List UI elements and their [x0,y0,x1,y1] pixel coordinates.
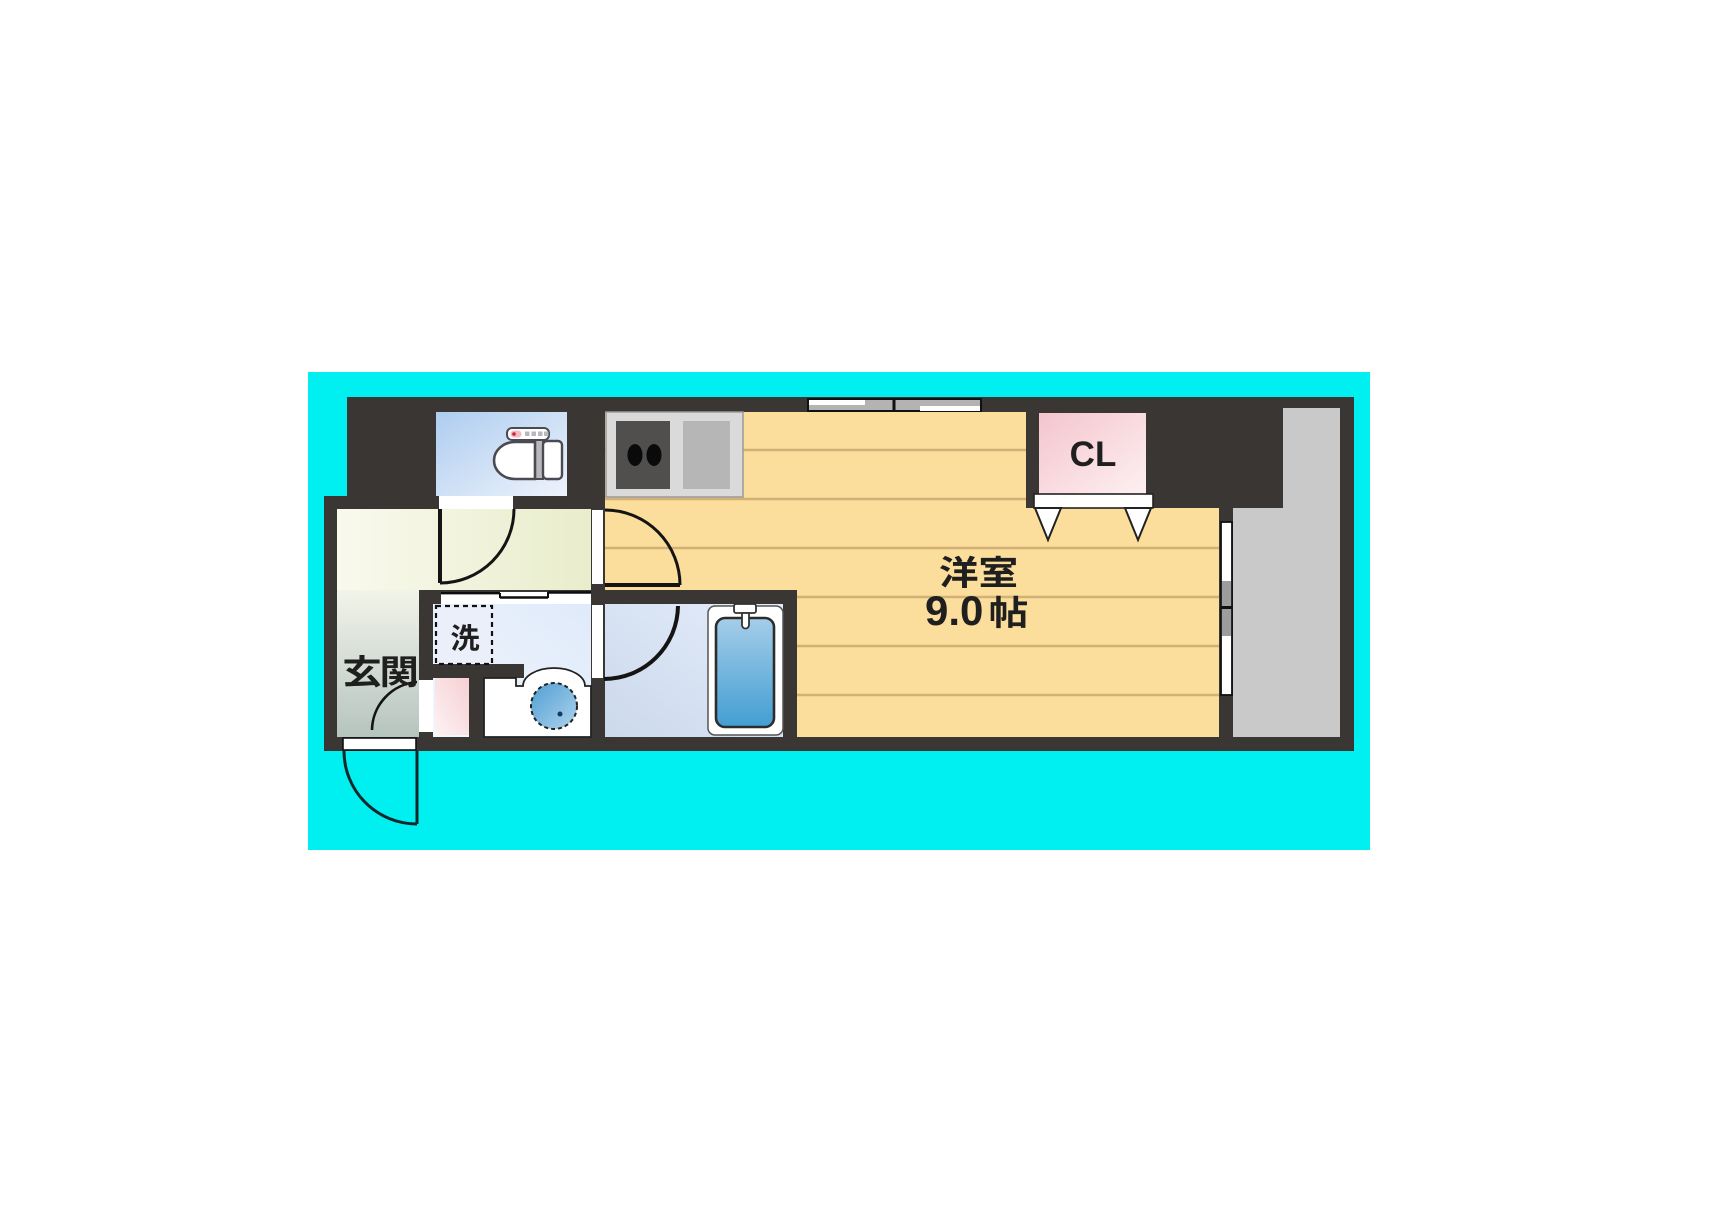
svg-text:9.0: 9.0 [925,587,983,634]
svg-text:CL: CL [1070,435,1117,474]
